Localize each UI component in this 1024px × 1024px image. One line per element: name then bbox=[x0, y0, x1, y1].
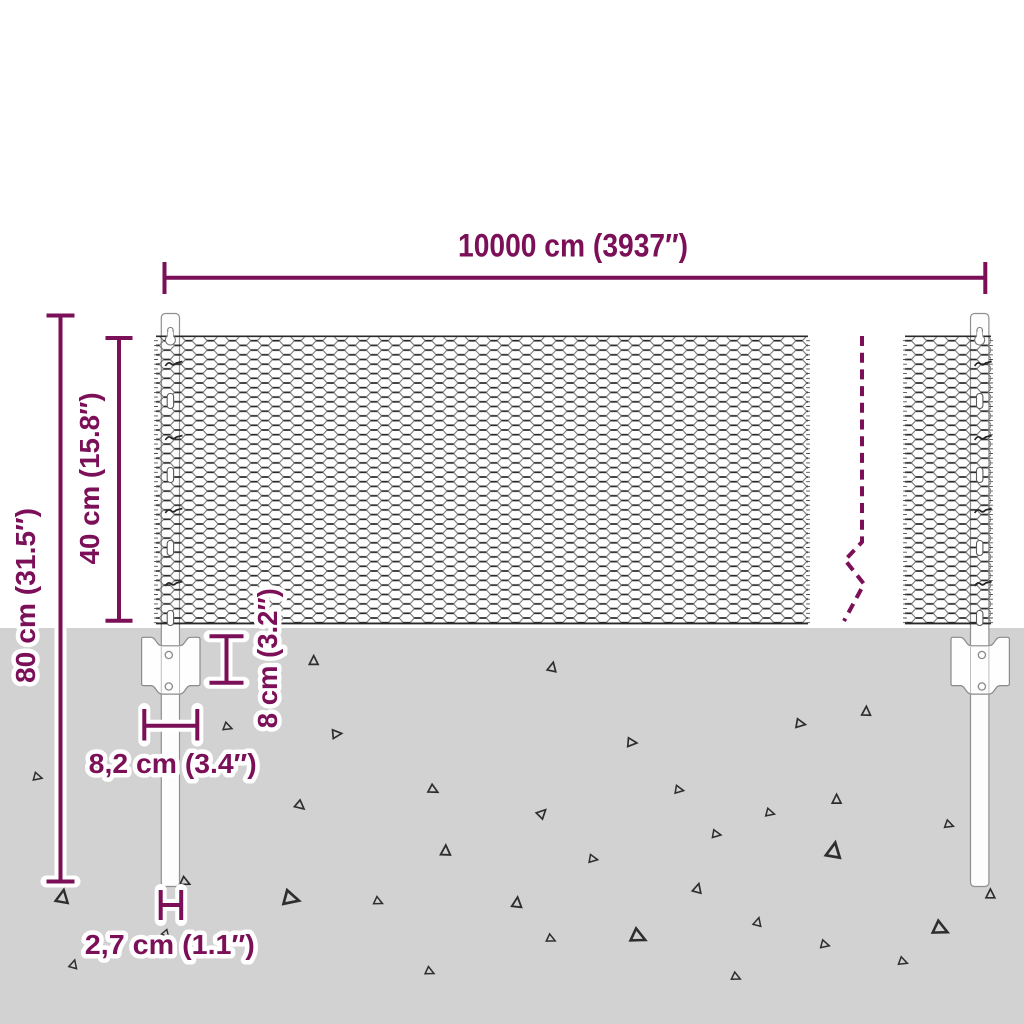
svg-text:8,2 cm (3.4″): 8,2 cm (3.4″) bbox=[89, 748, 257, 779]
svg-text:8 cm (3.2″): 8 cm (3.2″) bbox=[252, 588, 283, 728]
svg-text:2,7 cm (1.1″): 2,7 cm (1.1″) bbox=[85, 929, 255, 960]
svg-text:10000 cm (3937″): 10000 cm (3937″) bbox=[458, 228, 688, 264]
svg-text:80 cm (31.5″): 80 cm (31.5″) bbox=[10, 508, 41, 683]
svg-text:40 cm (15.8″): 40 cm (15.8″) bbox=[74, 392, 105, 564]
